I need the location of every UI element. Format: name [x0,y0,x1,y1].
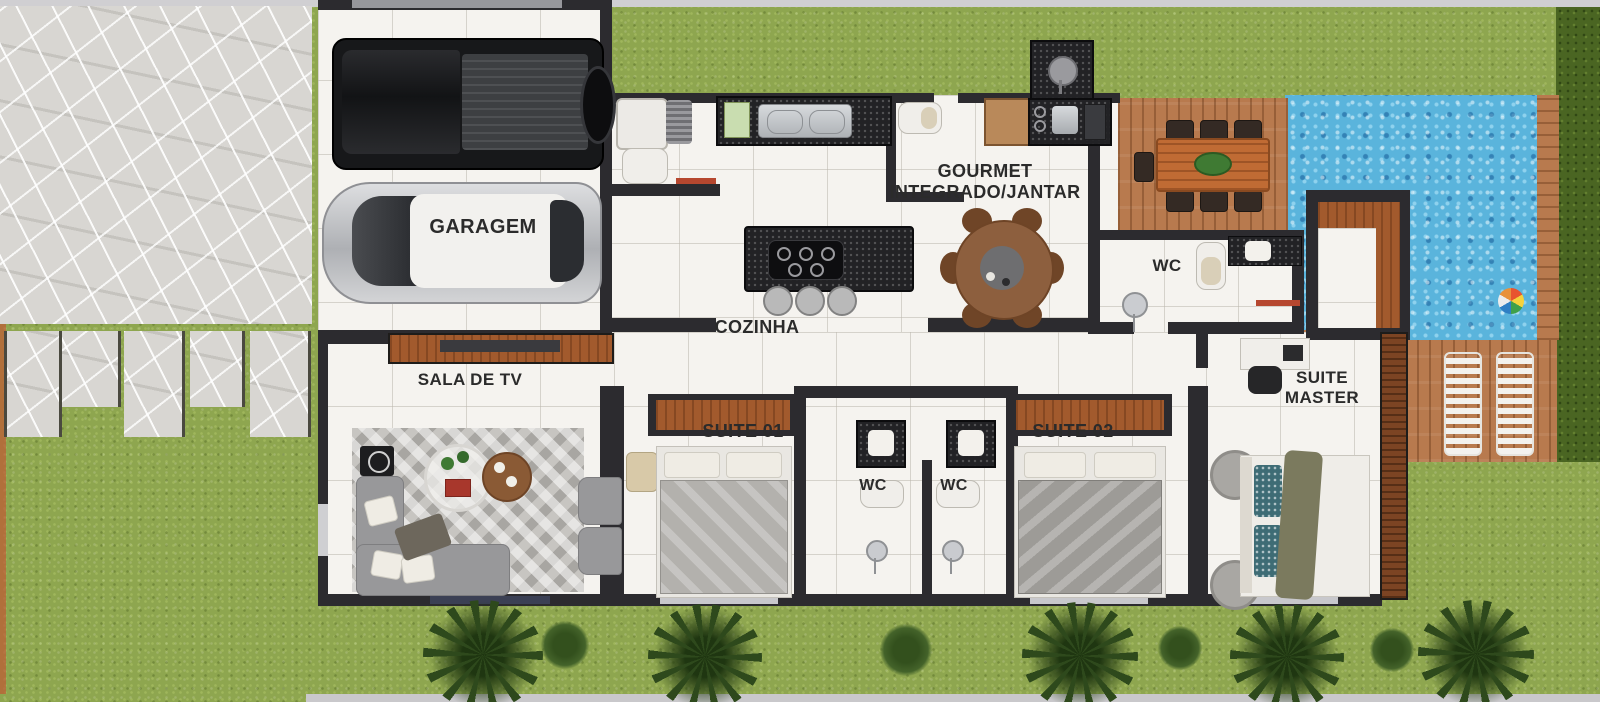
suite2-bed [1014,446,1164,596]
burner [1034,120,1046,132]
room-label-kitchen: COZINHA [687,317,827,338]
stepping-stone [4,331,62,437]
palm-tree [648,604,762,702]
stepping-stone [190,331,245,407]
bed-pillow [664,452,720,478]
bed-pillow [726,452,782,478]
laptop [1283,345,1303,361]
toilet [622,148,668,184]
round-dining-table [954,220,1054,320]
suite2-wc-vanity [946,420,996,468]
suite1-armchair [626,452,658,492]
car-rear-window [550,200,584,282]
shower-stem [874,558,876,574]
shower-stem [950,558,952,574]
headboard [1240,457,1252,593]
table-centerpiece-plant [1196,154,1230,174]
shower-head [1122,292,1148,318]
room-label-wc-suite1: WC [853,477,893,495]
cooktop [768,240,844,280]
cup [494,462,505,473]
wall [318,332,328,504]
shower-head [942,540,964,562]
room-label-suite2: SUITE 02 [1008,421,1138,442]
gourmet-counter [1028,98,1112,146]
vanity-basin [1245,241,1271,261]
wall [1168,322,1304,334]
garage-door-opening [352,0,562,8]
bottle [986,272,995,281]
palm-tree [1418,600,1534,702]
side-table-ring [368,451,390,473]
bed-pillow [1024,452,1086,478]
mini-fridge [1084,104,1106,140]
powder-room-toilet [898,102,942,134]
faucet [1059,80,1062,94]
vanity-basin [958,430,984,456]
bed-pillow [1094,452,1156,478]
room-label-wc-suite2: WC [934,477,974,495]
armchair [578,477,622,525]
room-label-suite1: SUITE 01 [678,421,808,442]
burner [810,263,824,277]
sink-basin [767,110,803,134]
deck-chair [1134,152,1154,182]
suv-spare-tire [580,66,616,144]
deck-chair [1200,190,1228,212]
bar-stool [795,286,825,316]
suv-hood [342,50,460,154]
pool-side-deck-strip [1537,95,1559,340]
suite-master-label-line2: MASTER [1272,388,1372,408]
red-towel [676,178,716,184]
suite-master-label-line1: SUITE [1272,368,1372,388]
palm-tree [1230,604,1344,702]
burner [777,247,791,261]
sofa-pillow [370,550,404,581]
vanity-basin [868,430,894,456]
red-towel [1256,300,1300,306]
toilet-lid [921,107,937,129]
shrub [541,621,589,669]
armchair [578,527,622,575]
burner [788,263,802,277]
gourmet-table-group [940,206,1064,330]
burner [1034,106,1046,118]
wall [1196,386,1208,606]
bottle [1002,278,1010,286]
bed-duvet [660,480,788,594]
burner [821,247,835,261]
master-corner-floor [1318,228,1376,328]
kitchen-island [744,226,914,292]
car-roof [410,194,568,288]
sun-lounger [1496,352,1534,456]
sun-lounger [1444,352,1482,456]
stepping-stone [250,331,311,437]
shrub [1370,628,1414,672]
room-label-tv-room: SALA DE TV [395,370,545,390]
shrub [1158,626,1202,670]
stepping-stone [62,331,121,407]
gourmet-sink [1052,106,1078,134]
silver-car [322,182,602,304]
burner [799,247,813,261]
stone-patio [0,6,312,324]
room-label-gourmet: GOURMET INTEGRADO/JANTAR [872,161,1098,202]
bbq-sink [1048,56,1078,86]
gourmet-label-line1: GOURMET [872,161,1098,182]
shower-stem [1133,314,1135,332]
suv-roof-rack [462,54,588,150]
teal-pillow [1254,465,1282,517]
sink-basin [809,110,845,134]
bbq-block [1030,40,1094,102]
beach-ball [1498,288,1524,314]
suite1-bed [656,446,790,596]
wc-vanity [1228,236,1302,266]
wall [806,386,1006,398]
dish-rack [666,100,692,144]
room-label-suite-master: SUITE MASTER [1272,368,1372,407]
wall [1196,334,1208,368]
palm-tree [423,600,543,702]
suv-car [332,38,604,170]
bar-stool [763,286,793,316]
room-label-wc-hall: WC [1145,256,1189,276]
shower-head [866,540,888,562]
bed-duvet [1018,480,1162,594]
deck-chair [1166,190,1194,212]
plant [457,451,469,463]
red-book [445,479,471,497]
right-hedge [1556,7,1600,462]
plant [441,457,454,470]
toilet [1196,242,1226,290]
gourmet-label-line2: INTEGRADO/JANTAR [872,182,1098,203]
deck-dining-table [1156,138,1270,192]
gourmet-wood-cabinet [984,98,1032,146]
cutting-board [724,102,750,138]
wall [1088,322,1134,334]
window [318,504,328,556]
tray-table [482,452,532,502]
side-table [360,446,394,476]
master-wardrobe [1380,332,1408,600]
cup [506,476,517,487]
wall [1088,230,1100,334]
toilet-lid [1201,257,1221,285]
bar-stool [827,286,857,316]
palm-tree [1022,602,1138,702]
master-bed [1240,455,1368,595]
floor-plan: GARAGEM SALA DE TV [0,0,1600,702]
deck-chair [1234,190,1262,212]
tv-screen [440,340,560,352]
laundry-sink [616,98,668,150]
wall [612,184,720,196]
shrub [880,624,932,676]
room-label-garage: GARAGEM [398,216,568,239]
suite1-wc-vanity [856,420,906,468]
stepping-stone [124,331,185,437]
kitchen-double-sink [758,104,852,138]
wall [922,460,932,606]
